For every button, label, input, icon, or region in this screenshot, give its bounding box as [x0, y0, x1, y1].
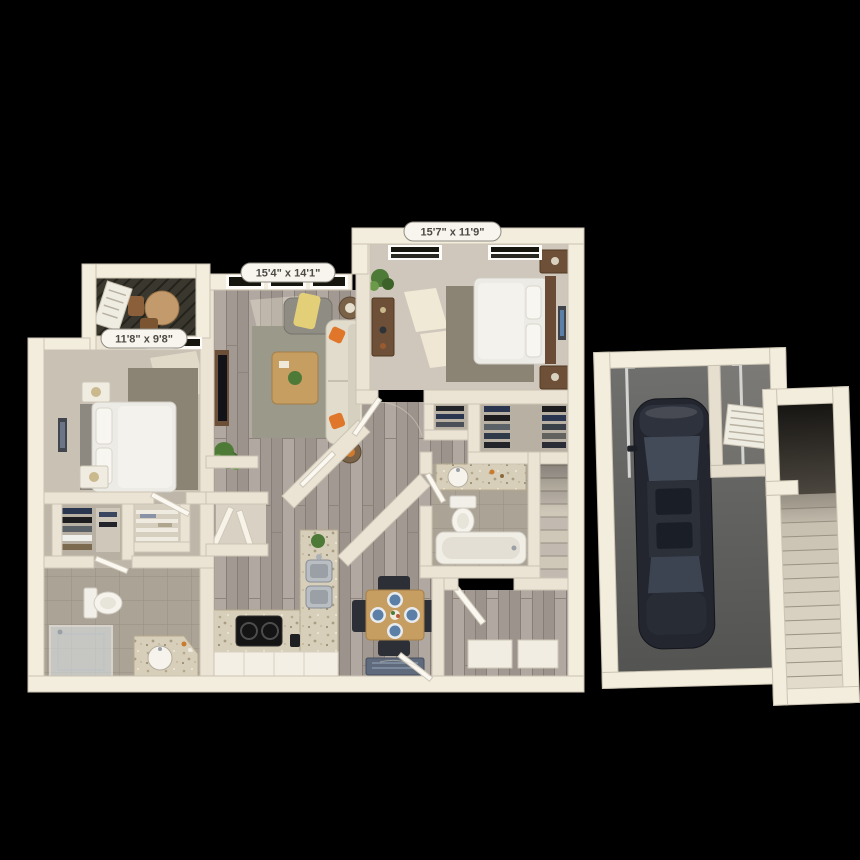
cooktop [236, 616, 282, 646]
headboard [545, 276, 556, 364]
faucet [456, 468, 460, 472]
cabinets [212, 652, 338, 678]
patio-chair [128, 296, 144, 316]
book [279, 361, 289, 368]
plate [390, 626, 401, 637]
car-rear-window [647, 556, 704, 593]
car-sunroof [656, 522, 693, 549]
faucet [316, 554, 322, 560]
bathtub [436, 532, 526, 564]
plant [311, 534, 325, 548]
accent-chair [284, 292, 332, 334]
faucet [512, 546, 517, 551]
car-mirror [627, 445, 637, 451]
plate [390, 595, 401, 606]
duvet [118, 406, 172, 488]
faucet [158, 647, 162, 651]
storage-unit [468, 640, 512, 668]
dresser-decor [380, 343, 386, 349]
pillow [96, 408, 112, 444]
lamp [551, 373, 559, 381]
dresser-decor [380, 307, 386, 313]
plate [407, 610, 418, 621]
stairwell-shadow [777, 403, 839, 525]
car-sunroof [655, 488, 692, 515]
car-windshield [644, 436, 701, 481]
car-trunk [646, 592, 707, 636]
window [388, 245, 442, 260]
interior-stairs [540, 452, 568, 578]
dimension-label-bedroom-1: 11'8" x 9'8" [101, 329, 187, 348]
coffee-maker [290, 634, 300, 647]
label-text: 15'7" x 11'9" [421, 227, 485, 239]
floorplan-canvas: 15'7" x 11'9" 15'4" x 14'1" 11'8" x 9'8" [0, 0, 860, 860]
coat-closet-contents [436, 406, 464, 427]
dresser-decor [380, 327, 387, 334]
dining-chair [378, 640, 410, 656]
lamp [91, 387, 101, 397]
pillow [526, 286, 541, 319]
plant [288, 371, 302, 385]
toiletries [188, 648, 192, 652]
duvet [478, 283, 524, 359]
dimension-label-bedroom-2: 15'7" x 11'9" [404, 222, 501, 241]
car [626, 397, 723, 649]
shower [50, 626, 112, 678]
lamp [89, 472, 99, 482]
lamp [551, 257, 559, 265]
artwork-canvas [60, 422, 65, 448]
apartment-unit [28, 228, 584, 692]
exterior-stairwell [763, 387, 860, 706]
pillow [526, 324, 541, 357]
toiletries [182, 642, 187, 647]
floorplan-screenshot: 15'7" x 11'9" 15'4" x 14'1" 11'8" x 9'8" [0, 0, 860, 860]
toilet [450, 496, 476, 534]
shower-head [58, 630, 63, 635]
label-text: 11'8" x 9'8" [115, 334, 173, 346]
artwork-canvas [560, 310, 564, 336]
storage-unit [518, 640, 558, 668]
vanity [134, 636, 198, 678]
lamp [345, 303, 355, 313]
toiletries [490, 470, 495, 475]
label-text: 15'4" x 14'1" [256, 268, 321, 280]
kitchen-island [300, 530, 338, 654]
tv [218, 355, 227, 421]
toiletries [500, 474, 504, 478]
dimension-label-living-room: 15'4" x 14'1" [241, 263, 335, 282]
coffee-table [272, 352, 318, 404]
window [488, 245, 542, 260]
plate [373, 610, 384, 621]
